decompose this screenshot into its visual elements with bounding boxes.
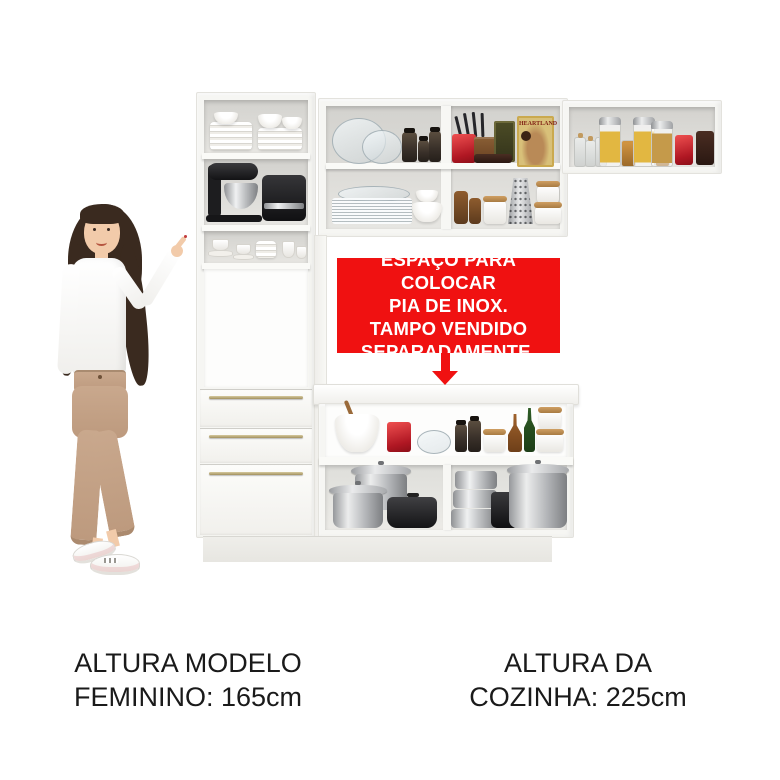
saucer	[208, 250, 233, 257]
dutch-oven-knob	[407, 493, 419, 497]
flat-box	[474, 154, 512, 163]
heartland-label: HEARTLAND	[519, 121, 552, 127]
cup-stack	[256, 241, 276, 258]
pasta-jar	[599, 123, 621, 167]
shelf-appliances	[204, 159, 308, 225]
banner-line-1: ESPAÇO PARA COLOCAR	[337, 248, 560, 294]
amber-jar	[454, 191, 468, 224]
sink-space-banner: ESPAÇO PARA COLOCAR PIA DE INOX. TAMPO V…	[337, 258, 560, 353]
caption-kitchen-height: ALTURA DA COZINHA: 225cm	[428, 646, 728, 714]
black-jar	[455, 424, 467, 452]
counter-open-shelf	[325, 404, 567, 457]
wall-cabinet-right	[562, 100, 722, 174]
canister-wood-lid	[539, 412, 561, 429]
large-white-bowl	[335, 414, 379, 452]
arrow-down-icon-head	[432, 371, 458, 385]
black-jar	[468, 420, 481, 452]
wall-cabinet-middle: HEARTLAND	[318, 98, 568, 237]
counter-divider	[443, 465, 451, 530]
saucer	[233, 254, 254, 260]
counter-top	[313, 384, 579, 405]
mixer-base	[206, 215, 262, 222]
red-canister	[387, 422, 411, 452]
bowl-stack	[258, 128, 302, 150]
stainless-pot-front	[333, 493, 383, 528]
steamer-tier	[455, 471, 497, 489]
model-trouser-button	[98, 375, 102, 379]
drawer-3	[200, 464, 312, 535]
canister-wood-lid	[535, 207, 561, 224]
white-bowl	[412, 202, 442, 222]
glass-bowl	[417, 430, 451, 454]
caption-model-height: ALTURA MODELO FEMININO: 165cm	[38, 646, 338, 714]
model-arm-right-forearm	[138, 248, 181, 308]
coffee-machine	[262, 175, 306, 221]
shelf-cups	[204, 231, 308, 263]
canister-wood-lid	[537, 186, 559, 203]
tall-cabinet	[196, 92, 316, 538]
mixer-bowl	[224, 183, 258, 209]
model-hair-fringe	[80, 204, 124, 224]
black-dutch-oven	[387, 497, 437, 528]
plinth-base	[203, 536, 552, 562]
green-bottle	[524, 408, 535, 452]
model-shoelaces	[104, 558, 118, 563]
mug	[296, 246, 307, 259]
stock-pot	[509, 473, 567, 528]
counter-cabinet	[318, 403, 574, 538]
grain-jar	[651, 127, 673, 167]
canister-wood-lid	[484, 201, 506, 224]
arrow-down-icon	[441, 353, 450, 372]
package-badge	[521, 131, 531, 141]
knife	[481, 113, 485, 137]
caption-kitchen-height-line2: COZINHA: 225cm	[428, 680, 728, 714]
microwave-nook	[204, 269, 308, 387]
dark-jar	[418, 140, 429, 162]
caption-model-height-line1: ALTURA MODELO	[38, 646, 338, 680]
banner-line-2: PIA DE INOX.	[337, 294, 560, 317]
knife-block	[452, 134, 476, 163]
mixer-head	[208, 163, 258, 180]
caption-kitchen-height-line1: ALTURA DA	[428, 646, 728, 680]
amber-carafe	[508, 414, 522, 452]
grater	[508, 178, 533, 224]
white-bowl-small	[416, 190, 438, 202]
banner-line-3: TAMPO VENDIDO	[337, 317, 560, 340]
drawer-2-handle	[209, 435, 303, 438]
bowl	[258, 114, 282, 128]
counter-lower-interior	[325, 465, 567, 530]
canister-wood-lid	[537, 434, 563, 452]
wall-cabinet-middle-interior: HEARTLAND	[326, 106, 560, 229]
model-eye-right	[107, 228, 110, 231]
brown-canister	[696, 131, 714, 165]
product-image: HEARTLAND	[0, 0, 780, 780]
drawer-1-handle	[209, 396, 303, 399]
glass-plate-stack	[332, 198, 412, 224]
drawer-1	[200, 389, 312, 427]
heartland-package: HEARTLAND	[517, 116, 554, 167]
mug	[282, 241, 295, 258]
model-trousers-hip	[72, 386, 128, 438]
model-smile	[96, 239, 107, 246]
model-eye-left	[93, 228, 96, 231]
wall-cabinet-right-interior	[569, 107, 715, 167]
dark-jar	[402, 132, 417, 162]
shelf-plates	[204, 100, 308, 153]
drawer-3-handle	[209, 472, 303, 475]
caption-model-height-line2: FEMININO: 165cm	[38, 680, 338, 714]
model-fingernail	[184, 235, 187, 238]
canister-wood-lid	[484, 434, 505, 452]
drawer-2	[200, 428, 312, 463]
female-model	[38, 202, 198, 577]
dark-jar	[429, 131, 441, 162]
glass-bowl	[362, 130, 402, 164]
coffee-machine-tray	[264, 203, 304, 209]
amber-jar	[469, 198, 481, 224]
red-canister	[675, 135, 693, 165]
plate-stack	[210, 122, 252, 150]
